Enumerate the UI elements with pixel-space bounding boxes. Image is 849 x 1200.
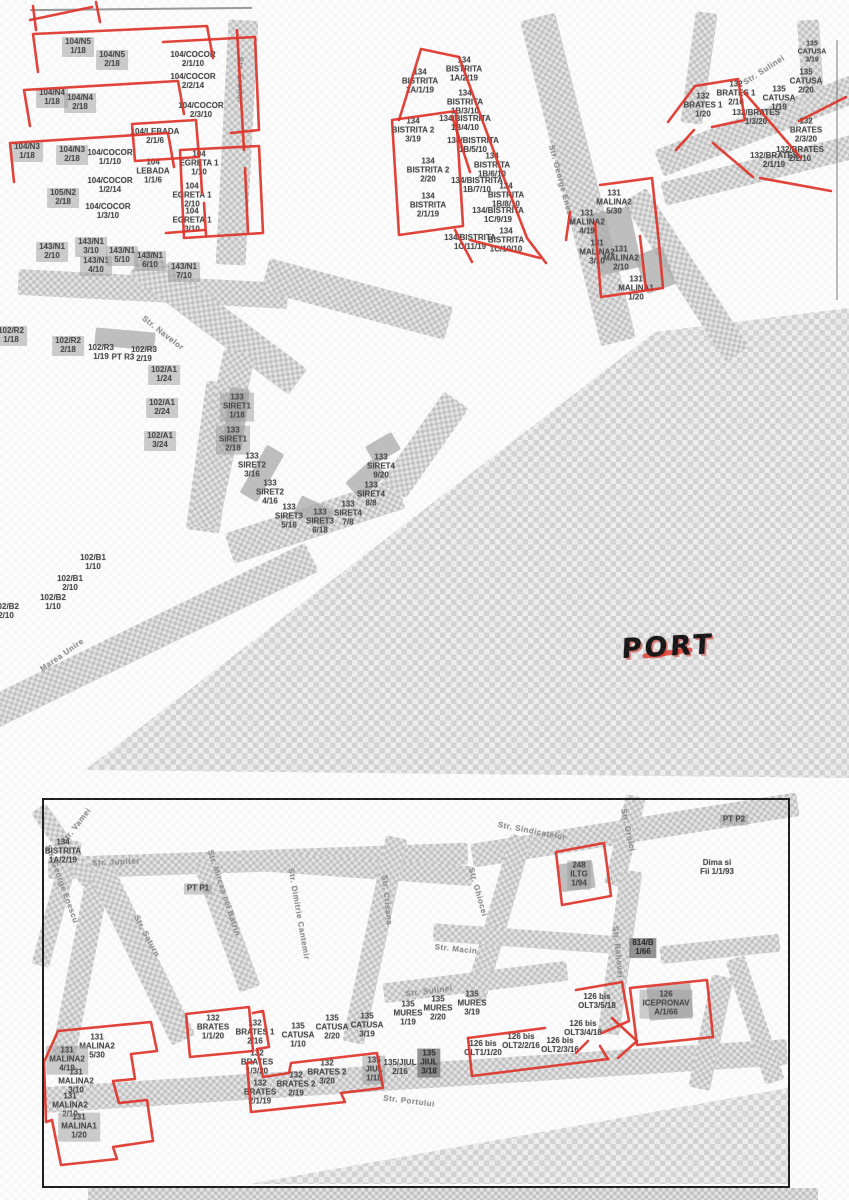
parcel-label: 248ILTG1/94 <box>567 861 591 890</box>
street-name-label: Str. Ghiocei <box>467 867 490 918</box>
parcel-label: 135CATUSA1/10 <box>282 1023 315 1050</box>
parcel-label: 102/A11/24 <box>148 365 180 385</box>
parcel-label: 104EGRETA 11/10 <box>179 151 218 178</box>
parcel-label-line: 2/20 <box>407 175 450 184</box>
parcel-label-line: 1/1/6 <box>136 176 169 185</box>
parcel-label: Dima siFii 1/1/93 <box>700 859 734 877</box>
parcel-label: 135JIUL1/18 <box>362 1056 385 1085</box>
parcel-label: 126 bisOLT3/5/18 <box>578 993 616 1011</box>
parcel-label-line: 1/66 <box>632 948 653 957</box>
parcel-label-line: 1/18 <box>65 47 91 56</box>
parcel-label: 102/B12/10 <box>57 575 83 593</box>
parcel-label: 133SIRET24/16 <box>256 480 284 507</box>
parcel-label-line: 3/19 <box>458 1008 487 1017</box>
parcel-label: 126 bisOLT1/1/20 <box>464 1040 502 1058</box>
parcel-label-line: 3/10 <box>172 225 211 234</box>
parcel-label-line: PT P2 <box>723 816 745 825</box>
parcel-label-line: 1/19 <box>88 353 114 362</box>
parcel-label: 143/N12/10 <box>36 242 68 262</box>
parcel-label: 133SIRET12/18 <box>216 426 250 455</box>
street-segment <box>194 858 261 992</box>
parcel-label-line: 1/18 <box>14 152 40 161</box>
parcel-label-line: 2/2/14 <box>170 82 215 91</box>
parcel-label: 105/N22/18 <box>47 188 79 208</box>
parcel-label: 126 bisOLT2/3/16 <box>541 1037 579 1055</box>
parcel-label-line: 2/1/6 <box>131 137 180 146</box>
parcel-label: 126 bisOLT2/2/16 <box>502 1033 540 1051</box>
parcel-label-line: 1/3/20 <box>241 1067 273 1076</box>
parcel-label-line: 2/16 <box>717 98 756 107</box>
parcel-label: 135MURES1/19 <box>394 1001 423 1028</box>
parcel-label: 102/R32/19 <box>131 346 157 364</box>
parcel-label: 135JIUL3/18 <box>417 1049 440 1078</box>
parcel-label-line: 1/18 <box>0 336 24 345</box>
street-name-label: Str. Dimitrie Cantemir <box>287 868 312 961</box>
parcel-label-line: 3/19 <box>798 56 827 64</box>
parcel-label-line: 1/18 <box>365 1074 382 1083</box>
parcel-label-line: 7/10 <box>171 272 197 281</box>
parcel-label-line: 2/18 <box>50 198 76 207</box>
parcel-label: 104/COCOR1/2/14 <box>87 177 132 195</box>
parcel-label-line: 1/10 <box>179 168 218 177</box>
parcel-label-line: 2/10 <box>0 612 19 621</box>
parcel-label-line: 9/20 <box>367 471 395 480</box>
parcel-label-line: 1/10 <box>80 563 106 572</box>
parcel-label-line: 2/3/20 <box>790 135 822 144</box>
parcel-label: 131MALINA11/20 <box>58 1113 100 1142</box>
parcel-label: 133SIRET49/20 <box>367 454 395 481</box>
parcel-label: 104/COCOR2/2/14 <box>170 73 215 91</box>
parcel-label-line: 1/2/14 <box>87 186 132 195</box>
parcel-label: 133SIRET11/18 <box>220 393 254 422</box>
parcel-label: 104EGRETA 12/10 <box>172 183 211 210</box>
parcel-label-line: 1/1/10 <box>87 158 132 167</box>
parcel-label: 102/A12/24 <box>146 398 178 418</box>
parcel-label-line: 2/18 <box>55 346 81 355</box>
parcel-label: 135CATUSA2/20 <box>316 1015 349 1042</box>
parcel-label: 143/N17/10 <box>168 262 200 282</box>
parcel-label-line: 1C/9/19 <box>472 216 524 225</box>
parcel-label-line: 3/24 <box>147 441 173 450</box>
parcel-label-line: OLT2/3/16 <box>541 1046 579 1055</box>
parcel-label-line: 2/20 <box>316 1032 349 1041</box>
parcel-label-line: 1C/10/10 <box>488 245 524 254</box>
parcel-label: 133SIRET36/18 <box>306 509 334 536</box>
parcel-label-line: 1/24 <box>151 375 177 384</box>
parcel-label-line: 2/1/19 <box>410 210 446 219</box>
parcel-label-line: 1/20 <box>618 293 654 302</box>
parcel-label: 134BISTRITA1A/1/19 <box>402 69 438 96</box>
street-name-label: Str. Eroilor <box>236 57 245 104</box>
parcel-label: 134BISTRITA1B/3/10 <box>447 90 483 117</box>
parcel-label-line: 8/8 <box>357 499 385 508</box>
parcel-label-line: 3/10 <box>78 247 104 256</box>
parcel-label-line: OLT3/5/18 <box>578 1002 616 1011</box>
parcel-label: PT P1 <box>184 884 212 895</box>
parcel-label: 132BRATES 22/19 <box>277 1072 316 1099</box>
parcel-label-line: A/1/66 <box>643 1008 690 1017</box>
parcel-label: 102/R31/19 <box>88 344 114 362</box>
parcel-label-line: 2/19 <box>277 1089 316 1098</box>
parcel-label: 134BISTRITA1C/10/10 <box>488 228 524 255</box>
parcel-label-line: 2/3/10 <box>178 111 223 120</box>
parcel-label-line: 4/10 <box>83 266 109 275</box>
parcel-label-line: 2/24 <box>149 408 175 417</box>
street-segment <box>87 859 196 1046</box>
parcel-label: 104/N52/18 <box>96 50 128 70</box>
parcel-label: 104/COCOR1/3/10 <box>85 203 130 221</box>
street-segment <box>688 974 733 1091</box>
parcel-label-line: 1A/2/19 <box>45 856 81 865</box>
parcel-label: 131MALINA11/20 <box>618 276 654 303</box>
parcel-label: 132BRATES2/1/19 <box>244 1080 276 1107</box>
parcel-label: 132BRATES 12/16 <box>717 81 756 108</box>
parcel-label-line: 2/10 <box>603 263 639 272</box>
parcel-label: 134/BISTRITA1B/4/10 <box>439 115 491 133</box>
parcel-label-line: 3/18 <box>420 1067 437 1076</box>
parcel-label: 135/JIUL2/16 <box>384 1059 417 1077</box>
parcel-label-line: 6/10 <box>137 261 163 270</box>
street-name-label: Str. Macin <box>434 942 478 955</box>
parcel-label-line: 1B/4/10 <box>439 124 491 133</box>
parcel-label-line: OLT1/1/20 <box>464 1049 502 1058</box>
parcel-label-line: PT P1 <box>187 885 209 894</box>
parcel-label-line: OLT3/4/18 <box>564 1029 602 1038</box>
parcel-label: 102/B11/10 <box>80 554 106 572</box>
parcel-label-line: 3/19 <box>392 135 435 144</box>
parcel-label-line: CATUSA <box>798 48 827 56</box>
parcel-label: 102/R21/18 <box>0 326 27 346</box>
parcel-label: 135MURES2/20 <box>424 996 453 1023</box>
street-segment <box>659 934 780 964</box>
parcel-label-line: 4/19 <box>569 227 605 236</box>
parcel-label-line: 1A/2/19 <box>446 74 482 83</box>
parcel-label: 126 bisOLT3/4/18 <box>564 1020 602 1038</box>
parcel-label-line: 2/1/10 <box>170 60 215 69</box>
parcel-label: 104EGRETA 13/10 <box>172 208 211 235</box>
parcel-label: 133SIRET48/8 <box>357 482 385 509</box>
parcel-label-line: 2/10 <box>57 584 83 593</box>
parcel-label: 132/BRATES2/1/19 <box>750 152 798 170</box>
scan-edge-line-right <box>836 40 838 300</box>
parcel-label-line: 7/8 <box>334 518 362 527</box>
parcel-label-line: 1/10 <box>40 603 66 612</box>
parcel-label: 104/N51/18 <box>62 37 94 57</box>
parcel-label: 131MALINA22/10 <box>603 246 639 273</box>
parcel-label: 134BISTRITA1A/2/19 <box>446 57 482 84</box>
parcel-label-line: 1/18 <box>39 98 65 107</box>
parcel-label-line: 6/18 <box>306 526 334 535</box>
parcel-label: 102/B22/10 <box>0 603 19 621</box>
parcel-label: 104/LEBADA2/1/6 <box>131 128 180 146</box>
parcel-label: 102/A13/24 <box>144 431 176 451</box>
parcel-label-line: 1/3/10 <box>85 212 130 221</box>
parcel-label: 104/N31/18 <box>11 142 43 162</box>
parcel-label: 104LEBADA1/1/6 <box>136 159 169 186</box>
parcel-label: 135MURES3/19 <box>458 991 487 1018</box>
parcel-label-line: 2/16 <box>384 1068 417 1077</box>
street-name-label: Str. Portului <box>383 1093 436 1108</box>
parcel-label-line: 2/16 <box>236 1037 275 1046</box>
parcel-label-line: 2/10 <box>39 252 65 261</box>
parcel-label: 132BRATES 12/16 <box>236 1020 275 1047</box>
parcel-label: 143/N16/10 <box>134 251 166 271</box>
parcel-label-line: 1/3/20 <box>732 118 780 127</box>
parcel-label: 102/B21/10 <box>40 594 66 612</box>
parcel-label: 132BRATES1/1/20 <box>197 1015 229 1042</box>
parcel-label: 134BISTRITA 22/20 <box>407 158 450 185</box>
parcel-label: 131MALINA24/19 <box>569 210 605 237</box>
parcel-label: 814/B1/66 <box>629 938 656 958</box>
parcel-label-line: 1/94 <box>570 879 588 888</box>
parcel-label-line: 135 <box>798 40 827 48</box>
parcel-label: 104/COCOR2/1/10 <box>170 51 215 69</box>
parcel-label: 135CATUSA3/19 <box>798 40 827 63</box>
parcel-label: 104/N42/18 <box>64 93 96 113</box>
parcel-label-line: 1/18 <box>223 411 251 420</box>
parcel-label: 143/N13/10 <box>75 237 107 257</box>
parcel-label-line: 3/19 <box>351 1030 384 1039</box>
parcel-label-line: 2/1/19 <box>244 1097 276 1106</box>
parcel-label-line: OLT2/2/16 <box>502 1042 540 1051</box>
parcel-label-line: 3/16 <box>238 470 266 479</box>
parcel-label: 132/BRATES1/3/20 <box>732 109 780 127</box>
parcel-label: 134BISTRITA1A/2/19 <box>45 839 81 866</box>
parcel-label: 133SIRET35/16 <box>275 504 303 531</box>
port-handwritten-label: PORT <box>621 629 715 665</box>
parcel-label-line: 1/1/20 <box>197 1032 229 1041</box>
parcel-label-line: 5/16 <box>275 521 303 530</box>
parcel-label-line: 2/20 <box>424 1013 453 1022</box>
parcel-label: 134/BISTRITA1C/9/19 <box>472 207 524 225</box>
parcel-label-line: 1/20 <box>61 1131 97 1140</box>
parcel-label-line: 2/19 <box>131 355 157 364</box>
adjacent-sheet-strip <box>88 1188 818 1200</box>
scanned-map-page: { "document_type": "Scanned cadastral ma… <box>0 0 849 1200</box>
parcel-label-line: 1A/1/19 <box>402 86 438 95</box>
parcel-label: 133SIRET23/16 <box>238 453 266 480</box>
parcel-label-line: 1/10 <box>282 1040 315 1049</box>
parcel-label: 135CATUSA3/19 <box>351 1013 384 1040</box>
parcel-label: 102/R22/18 <box>52 336 84 356</box>
parcel-label: 126ICEPRONAVA/1/66 <box>640 990 693 1019</box>
parcel-label: 134BISTRITA2/1/19 <box>410 193 446 220</box>
parcel-label: 132BRATES1/3/20 <box>241 1050 273 1077</box>
parcel-label-line: 2/18 <box>59 155 85 164</box>
parcel-label-line: 2/1/19 <box>750 161 798 170</box>
parcel-label: 104/COCOR2/3/10 <box>178 102 223 120</box>
parcel-label: 104/N32/18 <box>56 145 88 165</box>
parcel-label: 104/COCOR1/1/10 <box>87 149 132 167</box>
parcel-label-line: 5/10 <box>109 256 135 265</box>
parcel-label: 134BISTRITA 23/19 <box>392 118 435 145</box>
parcel-label: 132BRATES2/3/20 <box>790 118 822 145</box>
parcel-label-line: 1/20 <box>684 110 723 119</box>
parcel-label-line: 2/18 <box>67 103 93 112</box>
parcel-label-line: 2/18 <box>99 60 125 69</box>
parcel-label: PT P2 <box>720 815 748 826</box>
parcel-label-line: Fii 1/1/93 <box>700 868 734 877</box>
parcel-label-line: 1/19 <box>394 1018 423 1027</box>
